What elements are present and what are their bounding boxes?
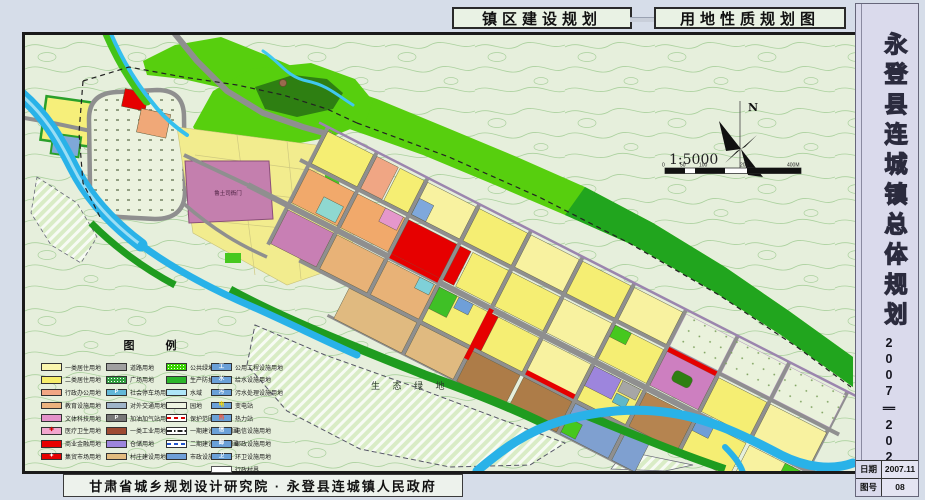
legend-swatch: P — [106, 414, 127, 422]
tab-connector-line — [630, 17, 656, 22]
legend-label: 道路用地 — [130, 363, 154, 372]
legend-swatch-icon: 污 — [219, 390, 225, 395]
legend-swatch — [41, 402, 62, 410]
date-row: 日期 2007.11 — [856, 461, 918, 479]
legend-item: P加油加气站用地 — [106, 414, 172, 422]
legend-swatch — [166, 427, 187, 435]
legend-swatch: 邮 — [211, 440, 232, 448]
legend-swatch — [106, 453, 127, 461]
legend-swatch: ✦ — [41, 453, 62, 461]
legend-item: 商业金融用地 — [41, 440, 101, 448]
legend-label: 污水处理设施用地 — [235, 388, 283, 397]
legend-label: 教育设施用地 — [65, 401, 101, 410]
legend-label: 文体科技用地 — [65, 414, 101, 423]
legend-swatch — [166, 389, 187, 397]
legend-item: 仓储用地 — [106, 440, 172, 448]
legend-swatch — [41, 440, 62, 448]
sheet-sidebar: 永登县连城镇总体规划 2007— —2020 日期 2007.11 图号 08 — [855, 3, 919, 497]
legend-item: 行政办公用地 — [41, 389, 101, 397]
legend-swatch: 污 — [211, 389, 232, 397]
legend-swatch-icon: 电 — [219, 403, 225, 408]
legend-label: 一类居住用地 — [65, 363, 101, 372]
legend-swatch — [166, 440, 187, 448]
legend-label: 广场用地 — [130, 375, 154, 384]
map-frame: N 1:5000 0 50 100 200 400M 生 态 绿 地 鲁土司衙门… — [22, 32, 858, 474]
legend-swatch: 卫 — [211, 453, 232, 461]
legend-label: 村庄建设用地 — [130, 452, 166, 461]
scale-tick: 0 — [662, 163, 665, 169]
legend-swatch-icon: 邮 — [219, 441, 225, 446]
legend-label: 仓储用地 — [130, 439, 154, 448]
legend-item: 二类居住用地 — [41, 376, 101, 384]
legend-swatch: 工 — [211, 363, 232, 371]
legend-item: 卫环卫设施用地 — [211, 453, 283, 461]
title-tab-landuse-map: 用地性质规划图 — [654, 7, 846, 29]
legend-swatch: 热 — [211, 414, 232, 422]
legend-item: 水给水设施用地 — [211, 376, 283, 384]
legend-swatch — [41, 376, 62, 384]
sheet-number-label: 图号 — [856, 479, 882, 497]
legend-swatch-icon: 水 — [219, 377, 225, 382]
eco-green-label: 生 态 绿 地 — [371, 380, 450, 391]
legend-swatch — [41, 389, 62, 397]
legend-item: 污污水处理设施用地 — [211, 389, 283, 397]
plan-sheet: { "header": { "tab1": "镇区建设规划", "tab2": … — [0, 0, 925, 500]
sheet-title-vertical: 永登县连城镇总体规划 — [874, 32, 914, 332]
title-tab-construction-plan: 镇区建设规划 — [452, 7, 632, 29]
legend-swatch-icon: P — [115, 416, 119, 421]
credit-bar: 甘肃省城乡规划设计研究院 · 永登县连城镇人民政府 — [63, 474, 463, 497]
legend-swatch-icon: 热 — [219, 416, 225, 421]
legend-swatch — [106, 363, 127, 371]
heritage-label: 鲁土司衙门 — [214, 189, 242, 197]
legend-label: 园地 — [190, 401, 202, 410]
legend-label: 热力站 — [235, 414, 253, 423]
legend-swatch — [166, 414, 187, 422]
legend-column-2: 道路用地广场用地P社会停车场用地对外交通用地P加油加气站用地一类工业用地仓储用地… — [106, 363, 172, 465]
legend-swatch — [166, 453, 187, 461]
legend-label: 对外交通用地 — [130, 401, 166, 410]
legend-swatch-icon: 工 — [219, 365, 225, 370]
legend-label: 一类工业用地 — [130, 426, 166, 435]
legend-label: 二类居住用地 — [65, 375, 101, 384]
legend-item: 村庄建设用地 — [106, 453, 172, 461]
legend-label: 给水设施用地 — [235, 375, 271, 384]
legend-label: 医疗卫生用地 — [65, 426, 101, 435]
legend-item: 一类居住用地 — [41, 363, 101, 371]
legend-swatch — [106, 376, 127, 384]
legend-label: 行政村界 — [235, 465, 259, 474]
legend-item: 对外交通用地 — [106, 401, 172, 409]
legend-swatch — [106, 440, 127, 448]
legend-swatch: P — [106, 389, 127, 397]
legend-item: 行政村界 — [211, 465, 283, 473]
legend-swatch — [41, 414, 62, 422]
legend-swatch: 信 — [211, 427, 232, 435]
legend-swatch-icon: 卫 — [219, 454, 225, 459]
legend-swatch-icon: 信 — [219, 428, 225, 433]
legend-swatch — [106, 402, 127, 410]
legend-item: 教育设施用地 — [41, 401, 101, 409]
legend-swatch — [106, 427, 127, 435]
legend-title: 图 例 — [67, 337, 247, 353]
legend-label: 商业金融用地 — [65, 439, 101, 448]
date-label: 日期 — [856, 461, 882, 478]
legend-swatch-icon: ✚ — [49, 428, 54, 433]
legend-label: 邮政设施用地 — [235, 439, 271, 448]
legend-item: 广场用地 — [106, 376, 172, 384]
sheet-info-table: 日期 2007.11 图号 08 — [856, 460, 918, 496]
scale-text: 1:5000 — [669, 152, 718, 168]
legend-item: 文体科技用地 — [41, 414, 101, 422]
legend-swatch: 电 — [211, 402, 232, 410]
legend-swatch-icon: P — [115, 390, 119, 395]
legend-item: P社会停车场用地 — [106, 389, 172, 397]
legend-item: 工公用工程设施用地 — [211, 363, 283, 371]
tab2-label: 用地性质规划图 — [680, 8, 820, 29]
legend-swatch — [166, 402, 187, 410]
legend-item: ✦集贸市场用地 — [41, 453, 101, 461]
legend-item: 一类工业用地 — [106, 427, 172, 435]
date-value: 2007.11 — [882, 461, 918, 478]
sheet-number-value: 08 — [882, 479, 918, 497]
legend-column-4: 工公用工程设施用地水给水设施用地污污水处理设施用地电变电站热热力站信电信设施用地… — [211, 363, 283, 478]
legend-swatch — [166, 376, 187, 384]
temple-dot — [280, 80, 287, 87]
legend-swatch-icon: ✦ — [49, 454, 54, 459]
legend-swatch — [41, 363, 62, 371]
legend-item: 道路用地 — [106, 363, 172, 371]
legend: 图 例 一类居住用地二类居住用地行政办公用地教育设施用地文体科技用地✚医疗卫生用… — [39, 337, 291, 469]
legend-swatch — [211, 466, 232, 474]
legend-item: ✚医疗卫生用地 — [41, 427, 101, 435]
legend-swatch — [166, 363, 187, 371]
north-label: N — [748, 101, 758, 114]
legend-label: 水域 — [190, 388, 202, 397]
legend-item: 邮邮政设施用地 — [211, 440, 283, 448]
sidebar-inner-line — [861, 4, 862, 496]
legend-swatch: ✚ — [41, 427, 62, 435]
legend-item: 信电信设施用地 — [211, 427, 283, 435]
legend-label: 电信设施用地 — [235, 426, 271, 435]
legend-label: 集贸市场用地 — [65, 452, 101, 461]
credit-text: 甘肃省城乡规划设计研究院 · 永登县连城镇人民政府 — [89, 476, 437, 495]
legend-item: 电变电站 — [211, 401, 283, 409]
sheet-number-row: 图号 08 — [856, 479, 918, 497]
legend-swatch: 水 — [211, 376, 232, 384]
legend-item: 热热力站 — [211, 414, 283, 422]
tab1-label: 镇区建设规划 — [482, 8, 602, 29]
legend-column-1: 一类居住用地二类居住用地行政办公用地教育设施用地文体科技用地✚医疗卫生用地商业金… — [41, 363, 101, 465]
legend-label: 行政办公用地 — [65, 388, 101, 397]
legend-label: 环卫设施用地 — [235, 452, 271, 461]
legend-label: 变电站 — [235, 401, 253, 410]
legend-label: 公用工程设施用地 — [235, 363, 283, 372]
